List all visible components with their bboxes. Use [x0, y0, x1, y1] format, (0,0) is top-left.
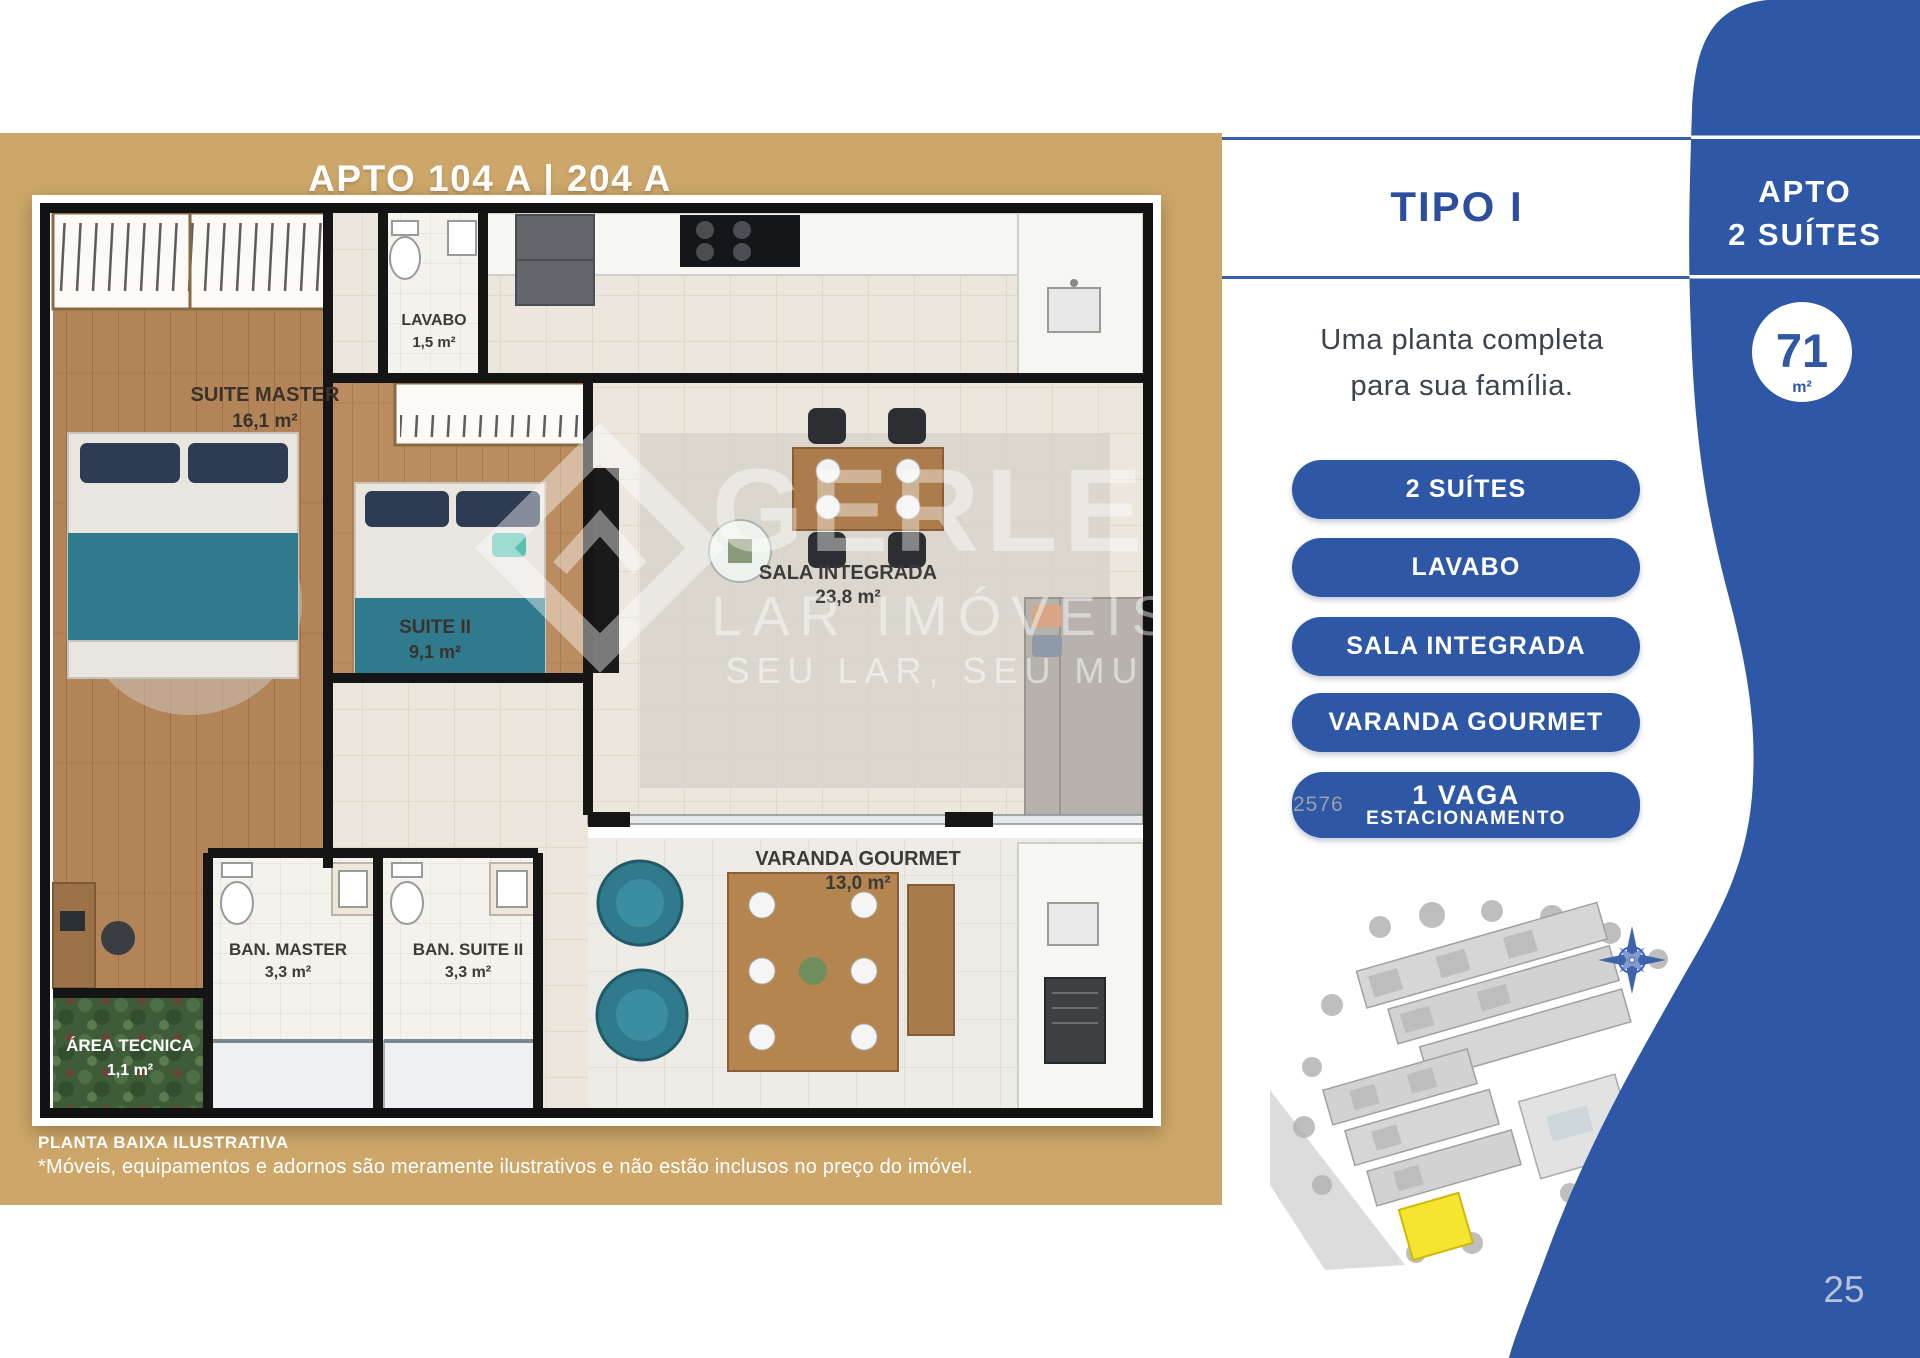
watermark-line3: SEU LAR, SEU MU — [725, 650, 1144, 691]
area-badge-value: 71 — [1776, 324, 1828, 377]
label-suite-ii: SUITE II — [399, 617, 471, 638]
brochure-page: APTO 104 A | 204 A — [0, 0, 1920, 1358]
apartment-title: APTO 104 A | 204 A — [140, 158, 840, 200]
toilet-suite-ii — [391, 882, 423, 924]
footnote-text: *Móveis, equipamentos e adornos são mera… — [38, 1156, 973, 1179]
bed-master-blanket — [68, 533, 298, 641]
room-passage — [538, 853, 588, 1113]
sink — [448, 221, 476, 255]
toilet-master — [221, 882, 253, 924]
label-suite-ii-area: 9,1 m² — [409, 642, 461, 662]
table-plant — [799, 957, 827, 985]
watermark-brand: GERLE — [712, 445, 1149, 577]
room-entry-hall — [328, 213, 383, 378]
desk — [53, 883, 95, 988]
pillow — [188, 443, 288, 483]
shower-suite-ii — [384, 1041, 534, 1109]
pillow — [365, 491, 449, 527]
area-badge-unit: m² — [1792, 379, 1812, 396]
watermark-code: 2576 — [1293, 793, 1344, 817]
shower-master — [212, 1041, 374, 1109]
page-number: 25 — [1823, 1269, 1864, 1310]
bar-cart — [908, 885, 954, 1035]
label-ban-master-area: 3,3 m² — [265, 964, 311, 981]
dining-chair — [888, 408, 926, 444]
label-suite-master-area: 16,1 m² — [232, 411, 297, 432]
dining-chair — [808, 408, 846, 444]
label-suite-master: SUITE MASTER — [191, 384, 340, 406]
watermark-line2: LAR IMÓVEIS — [711, 584, 1153, 647]
label-ban-suite-ii-area: 3,3 m² — [445, 964, 491, 981]
side-panel: APTO 2 SUÍTES 71 m² 25 — [1222, 0, 1920, 1358]
floorplan-svg: SUITE MASTER 16,1 m² LAVABO 1,5 m² SUITE… — [40, 203, 1153, 1118]
side-apto-line1: APTO — [1758, 174, 1852, 209]
footnote-title: PLANTA BAIXA ILUSTRATIVA — [38, 1133, 289, 1153]
label-area-tecnica: ÁREA TECNICA — [66, 1036, 194, 1055]
kitchen-sink — [1048, 288, 1100, 332]
label-lavabo: LAVABO — [401, 312, 466, 329]
label-ban-suite-ii: BAN. SUITE II — [413, 940, 524, 959]
bed-suite-ii-blanket — [355, 598, 545, 678]
pillow — [80, 443, 180, 483]
grill — [1045, 978, 1105, 1063]
label-lavabo-area: 1,5 m² — [412, 334, 455, 351]
label-ban-master: BAN. MASTER — [229, 940, 347, 959]
floorplan-image: SUITE MASTER 16,1 m² LAVABO 1,5 m² SUITE… — [32, 195, 1161, 1126]
label-varanda-gourmet: VARANDA GOURMET — [755, 848, 961, 870]
desk-chair — [101, 921, 135, 955]
label-area-tecnica-area: 1,1 m² — [107, 1062, 153, 1079]
closet-suite-ii-hangers — [400, 391, 583, 437]
varanda-sink — [1048, 903, 1098, 945]
label-varanda-gourmet-area: 13,0 m² — [825, 873, 890, 894]
sink — [497, 871, 527, 907]
laptop — [60, 911, 85, 931]
room-hallway — [328, 678, 588, 853]
toilet — [390, 237, 420, 279]
side-panel-shape — [1509, 0, 1920, 1358]
window-wall — [588, 815, 1143, 824]
side-apto-line2: 2 SUÍTES — [1728, 217, 1882, 252]
sink — [339, 871, 367, 907]
